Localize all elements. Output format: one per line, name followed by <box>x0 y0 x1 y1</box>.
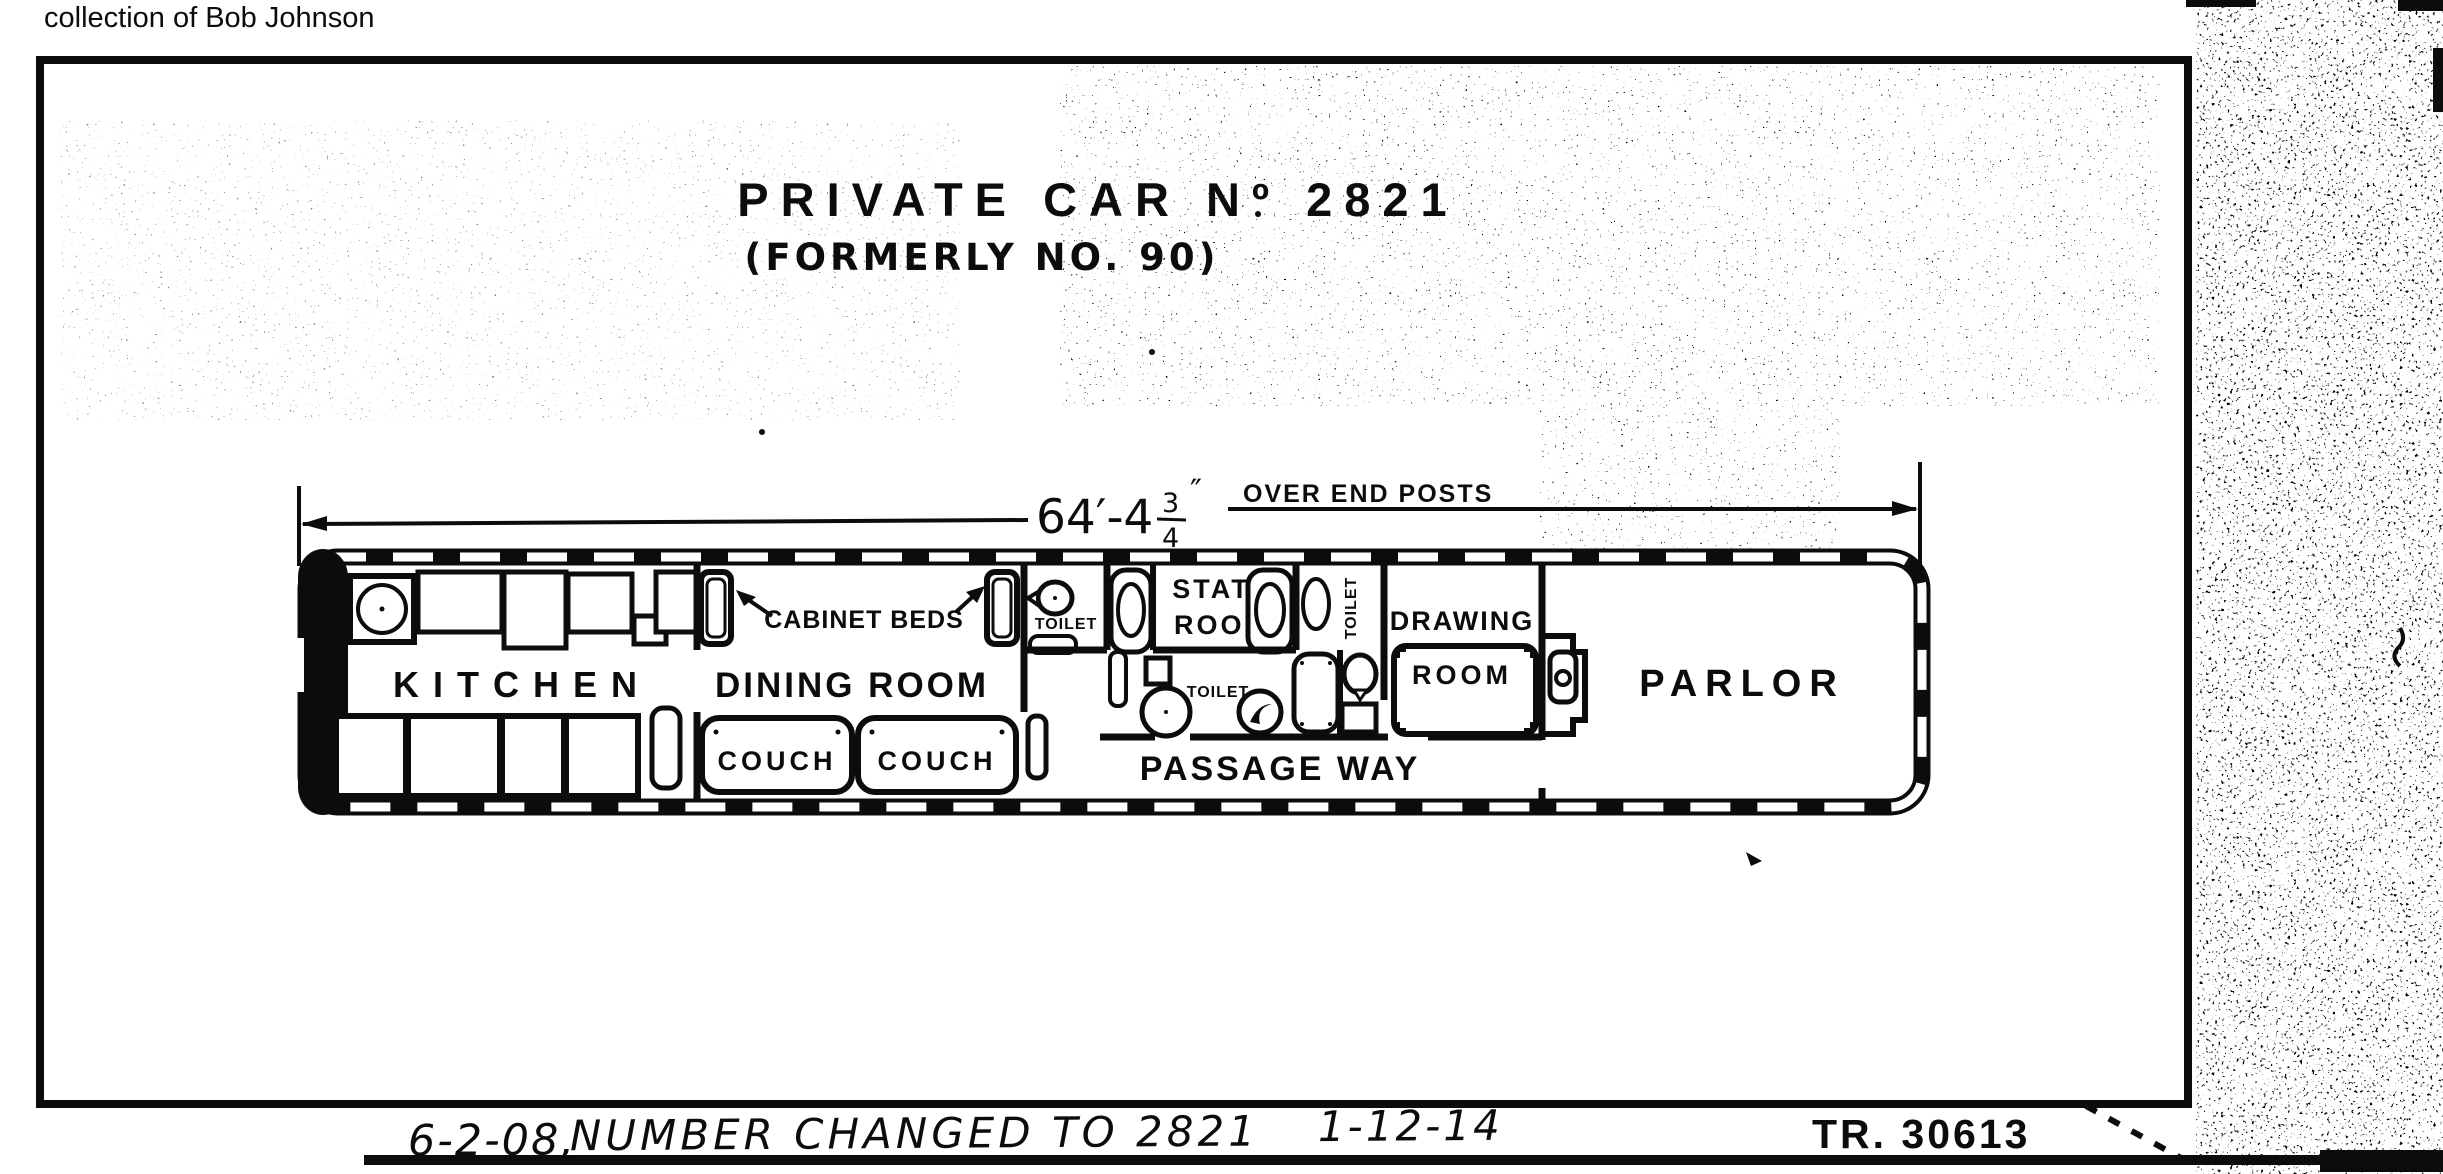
revision-date-2: 1-12-14 <box>1318 1101 1503 1151</box>
drawing-subtitle: (FORMERLY NO. 90) <box>744 236 1219 279</box>
room-label-parlor: PARLOR <box>1639 663 1845 705</box>
dimension-text: 64′-4 <box>1036 490 1153 545</box>
room-label-passageway: PASSAGE WAY <box>1140 750 1421 788</box>
toilet-label: TOILET <box>1035 616 1098 633</box>
door-leaf <box>1028 716 1046 778</box>
kitchen-locker <box>408 716 500 796</box>
room-label-kitchen: KITCHEN <box>393 664 651 705</box>
drawing-number: TR. 30613 <box>1812 1111 2030 1157</box>
berth-cushion <box>1118 584 1144 636</box>
couch-label: COUCH <box>718 746 837 776</box>
dimension-note: OVER END POSTS <box>1243 480 1493 508</box>
room-label-dining: DINING ROOM <box>715 666 989 705</box>
seat <box>1303 579 1329 629</box>
scanned-drawing-page: collection of Bob Johnson PRIVATE CAR Nº… <box>0 0 2443 1174</box>
toilet-label-vertical: TOILET <box>1343 577 1360 640</box>
kitchen-locker <box>336 716 406 796</box>
kitchen-counter <box>504 572 566 648</box>
kitchen-counter <box>568 574 632 632</box>
bathtub <box>1294 654 1338 732</box>
kitchen-counter <box>418 572 502 632</box>
drawing-title: PRIVATE CAR Nº 2821 <box>737 173 1458 226</box>
heater-door-icon <box>1556 671 1570 685</box>
toilet-label: TOILET <box>1187 684 1250 701</box>
dimension-inch-mark: ″ <box>1190 472 1202 510</box>
couch-label: COUCH <box>878 746 997 776</box>
kitchen-locker <box>566 716 638 796</box>
dimension-fraction-bar <box>1157 519 1186 520</box>
wash-stand <box>1146 658 1170 684</box>
toilet-bowl-icon <box>1344 655 1376 693</box>
collection-note: collection of Bob Johnson <box>44 2 375 34</box>
end-door-gap <box>294 638 304 692</box>
room-label-drawingroom: ROOM <box>1412 660 1512 690</box>
kitchen-locker <box>502 716 564 796</box>
cabinet-beds-label: CABINET BEDS <box>764 606 964 634</box>
cabinet <box>1342 704 1376 732</box>
kitchen-chair <box>652 708 680 788</box>
car-floor-plan: KITCHEN CABINET BEDS DINING ROOM COUCH C… <box>294 549 1922 815</box>
scan-edge-line <box>364 1155 2443 1165</box>
drawing-canvas: collection of Bob Johnson PRIVATE CAR Nº… <box>0 0 2443 1174</box>
dimension-fraction-numerator: 3 <box>1162 488 1179 519</box>
room-label-drawingroom: DRAWING <box>1390 606 1535 636</box>
door-leaf <box>1110 652 1126 706</box>
berth-cushion <box>1256 584 1284 636</box>
kitchen-counter <box>656 572 696 632</box>
revision-note: NUMBER CHANGED TO 2821 <box>570 1106 1259 1160</box>
